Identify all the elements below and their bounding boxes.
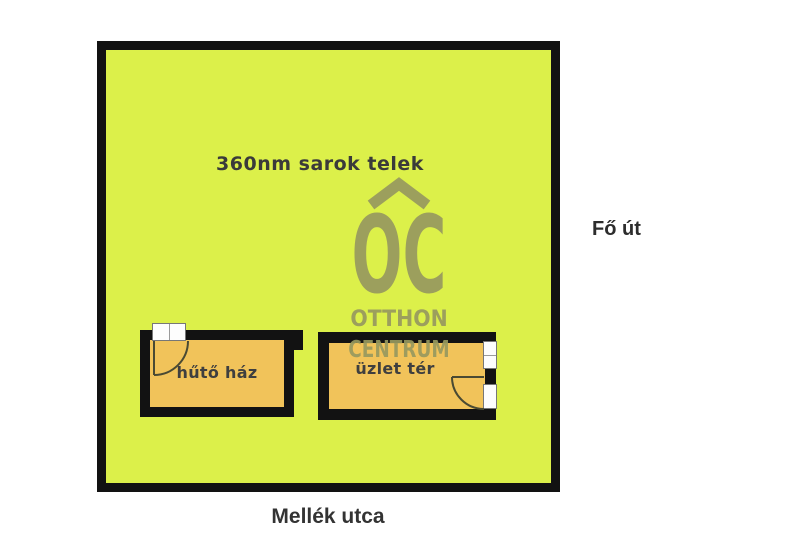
street-label-fo-ut: Fő út <box>592 218 641 241</box>
watermark-line2: CENTRUM <box>348 336 449 363</box>
window-divider <box>484 355 496 356</box>
otthon-centrum-watermark-logo: OC OTTHON CENTRUM <box>330 175 470 370</box>
plot-boundary <box>97 41 560 492</box>
street-label-mellek-utca: Mellék utca <box>228 505 428 529</box>
door-jamb-divider <box>169 324 170 340</box>
wall-stub <box>294 330 303 350</box>
door-swing-arc-icon <box>153 340 190 377</box>
door-opening-left-room <box>152 323 186 341</box>
watermark-monogram: OC <box>352 195 447 318</box>
plot-area-label: 360nm sarok telek <box>120 153 520 175</box>
door-swing-arc-icon <box>451 376 486 411</box>
window-opening-right-room <box>483 341 497 369</box>
watermark-line1: OTTHON <box>350 306 447 332</box>
